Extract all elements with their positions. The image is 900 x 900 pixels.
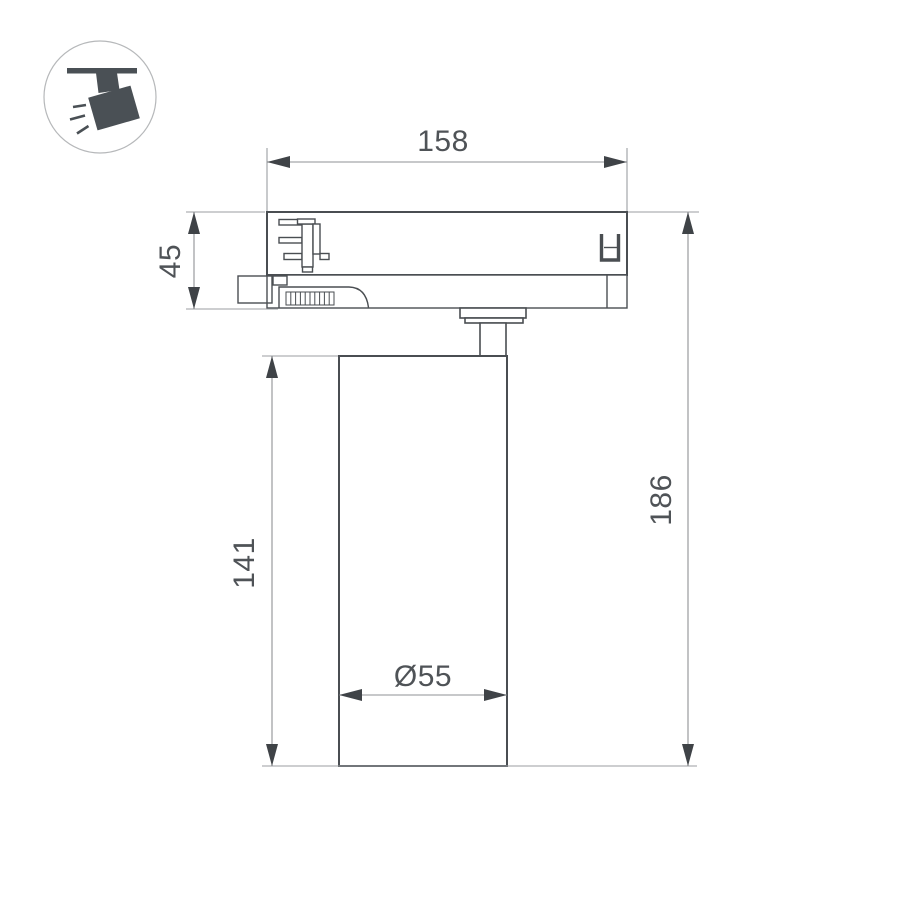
dimension-adapter-width: 158	[267, 125, 627, 168]
contact-prong-middle	[279, 238, 302, 244]
dim-label-adapter-height: 45	[154, 244, 187, 278]
dim-label-adapter-width: 158	[417, 125, 469, 158]
dimension-body-height: 141	[228, 356, 278, 766]
stem-flange-upper	[460, 308, 526, 318]
arrow-down-icon	[682, 744, 694, 766]
pin-foot	[303, 267, 313, 272]
adapter-upper-body	[267, 212, 627, 275]
contact-prong-right	[320, 254, 329, 260]
arrow-up-icon	[188, 212, 200, 234]
lamp-body	[339, 356, 507, 766]
arrow-right-icon	[604, 156, 627, 168]
dimension-adapter-height: 45	[154, 212, 200, 309]
arrow-left-icon	[267, 156, 290, 168]
icon-track-bar	[67, 68, 137, 74]
mounting-stem	[460, 308, 526, 356]
track-adapter	[238, 212, 627, 308]
arrow-up-icon	[682, 212, 694, 234]
dim-label-total-height: 186	[645, 474, 678, 526]
contact-prong-bottom	[284, 254, 302, 260]
track-spotlight-icon	[44, 41, 156, 153]
dimension-total-height: 186	[645, 212, 694, 766]
dim-label-body-diameter: Ø55	[394, 660, 452, 693]
arrow-up-icon	[266, 356, 278, 378]
pin-mast	[302, 224, 313, 267]
arrow-down-icon	[188, 287, 200, 309]
dim-label-body-height: 141	[228, 537, 261, 589]
pin-cap	[298, 219, 316, 224]
technical-drawing-canvas: 158 45 141 186 Ø55	[0, 0, 900, 900]
pin-plate	[313, 224, 320, 254]
dimension-drawing: 158 45 141 186 Ø55	[0, 0, 900, 900]
stem-neck	[480, 323, 506, 356]
arrow-down-icon	[266, 744, 278, 766]
latch-notch	[273, 276, 287, 285]
